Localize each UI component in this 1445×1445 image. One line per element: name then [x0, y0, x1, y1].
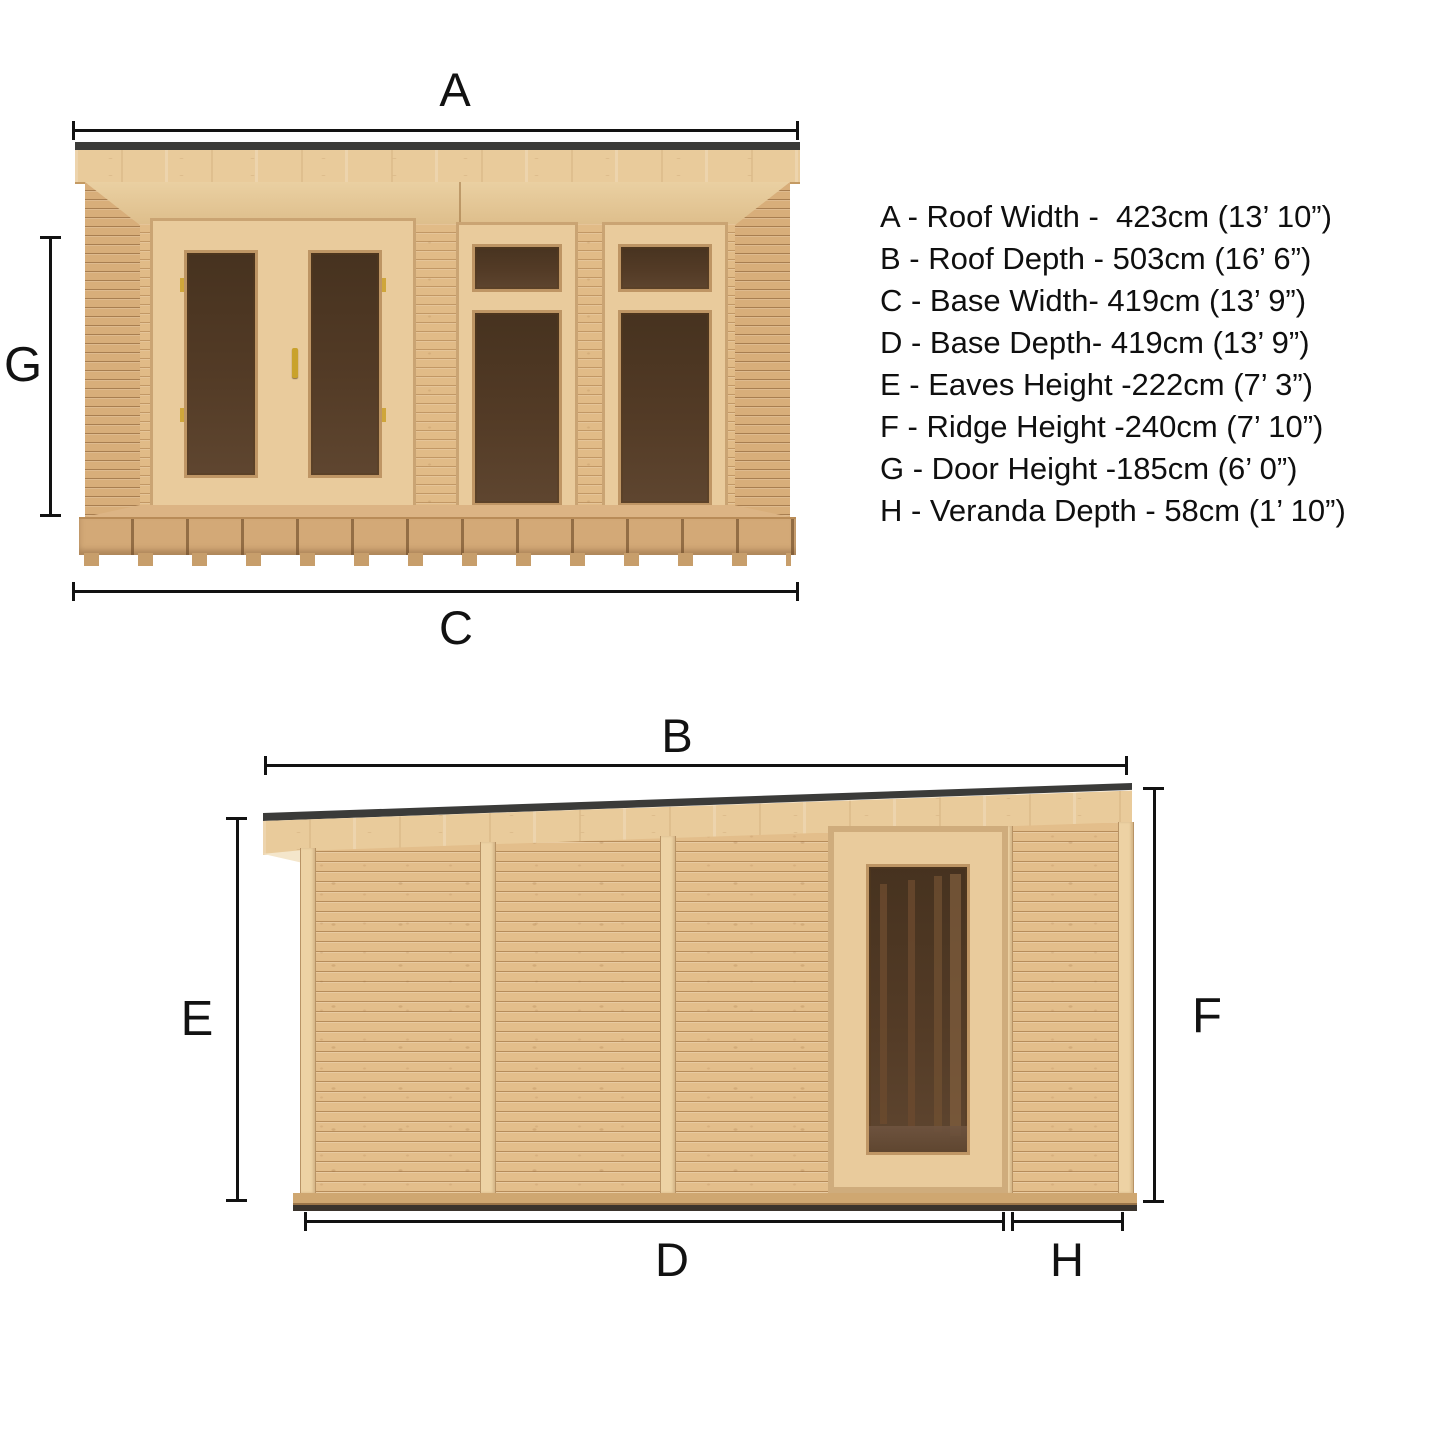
wall-batten	[300, 848, 316, 1193]
legend-item-base-depth: D - Base Depth- 419cm (13’ 9”)	[880, 322, 1420, 364]
window1-transom-glass	[472, 244, 562, 292]
front-roof-fascia	[75, 150, 800, 184]
dim-tick	[796, 582, 799, 601]
legend-item-base-width: C - Base Width- 419cm (13’ 9”)	[880, 280, 1420, 322]
dim-label-door-height: G	[0, 341, 58, 390]
front-window-1	[456, 222, 578, 512]
dim-tick	[40, 514, 61, 517]
base-sill	[293, 1193, 1137, 1205]
dim-line-eaves-height	[236, 820, 239, 1201]
legend-item-eaves-height: E - Eaves Height -222cm (7’ 3”)	[880, 364, 1420, 406]
dim-label-eaves-height: E	[162, 995, 232, 1044]
legend-item-roof-depth: B - Roof Depth - 503cm (16’ 6”)	[880, 238, 1420, 280]
dim-tick	[796, 121, 799, 140]
interior-window-silhouette	[950, 874, 961, 1136]
door-glass-right	[308, 250, 382, 478]
wall-batten	[480, 842, 496, 1193]
window2-main-glass	[618, 310, 712, 506]
dim-label-roof-width: A	[420, 66, 490, 113]
door-glass-left	[184, 250, 258, 478]
dim-tick	[1125, 756, 1128, 775]
dim-label-veranda-depth: H	[1032, 1236, 1102, 1283]
porch-right-wall	[735, 182, 790, 554]
dimension-legend: A - Roof Width - 423cm (13’ 10”) B - Roo…	[880, 196, 1420, 532]
ceiling-beam	[459, 182, 461, 227]
interior-frame-silhouette	[880, 884, 887, 1124]
dim-tick	[264, 756, 267, 775]
interior-frame-silhouette	[908, 880, 915, 1128]
dim-label-roof-depth: B	[642, 712, 712, 759]
door-hinge	[180, 278, 184, 292]
window2-transom-glass	[618, 244, 712, 292]
dim-line-base-depth	[305, 1220, 1004, 1223]
interior-frame-silhouette	[934, 876, 942, 1132]
deck-feet	[84, 553, 791, 566]
dim-tick	[226, 817, 247, 820]
door-hinge	[382, 278, 386, 292]
porch-floor	[85, 505, 790, 517]
window1-main-glass	[472, 310, 562, 506]
dim-tick	[72, 582, 75, 601]
dim-line-veranda-depth	[1012, 1220, 1123, 1223]
base-shadow	[293, 1205, 1137, 1211]
dim-label-base-width: C	[421, 604, 491, 651]
dim-tick	[40, 236, 61, 239]
dim-tick	[226, 1199, 247, 1202]
door-handle	[292, 348, 298, 378]
dim-tick	[1002, 1212, 1005, 1231]
dim-label-base-depth: D	[637, 1236, 707, 1283]
dim-tick	[72, 121, 75, 140]
dim-line-roof-width	[73, 129, 799, 132]
dimension-diagram: A	[0, 0, 1445, 1445]
dim-tick	[1143, 1200, 1164, 1203]
door-hinge	[180, 408, 184, 422]
dim-label-ridge-height: F	[1172, 992, 1242, 1041]
legend-item-door-height: G - Door Height -185cm (6’ 0”)	[880, 448, 1420, 490]
deck-face	[79, 517, 796, 555]
dim-line-roof-depth	[265, 764, 1128, 767]
french-doors	[150, 218, 416, 512]
wall-batten	[660, 836, 676, 1193]
door-hinge	[382, 408, 386, 422]
dim-tick	[1143, 787, 1164, 790]
dim-tick	[304, 1212, 307, 1231]
front-window-2	[602, 222, 728, 512]
front-roof-trim	[75, 142, 800, 150]
interior-floor	[869, 1126, 967, 1152]
legend-item-veranda-depth: H - Veranda Depth - 58cm (1’ 10”)	[880, 490, 1420, 532]
side-door	[828, 826, 1008, 1193]
legend-item-roof-width: A - Roof Width - 423cm (13’ 10”)	[880, 196, 1420, 238]
dim-tick	[1121, 1212, 1124, 1231]
porch-left-wall	[85, 182, 140, 554]
dim-tick	[1011, 1212, 1014, 1231]
dim-line-ridge-height	[1153, 790, 1156, 1202]
dim-line-base-width	[73, 590, 799, 593]
side-door-glass	[866, 864, 970, 1155]
legend-item-ridge-height: F - Ridge Height -240cm (7’ 10”)	[880, 406, 1420, 448]
wall-corner-batten	[1118, 822, 1134, 1193]
